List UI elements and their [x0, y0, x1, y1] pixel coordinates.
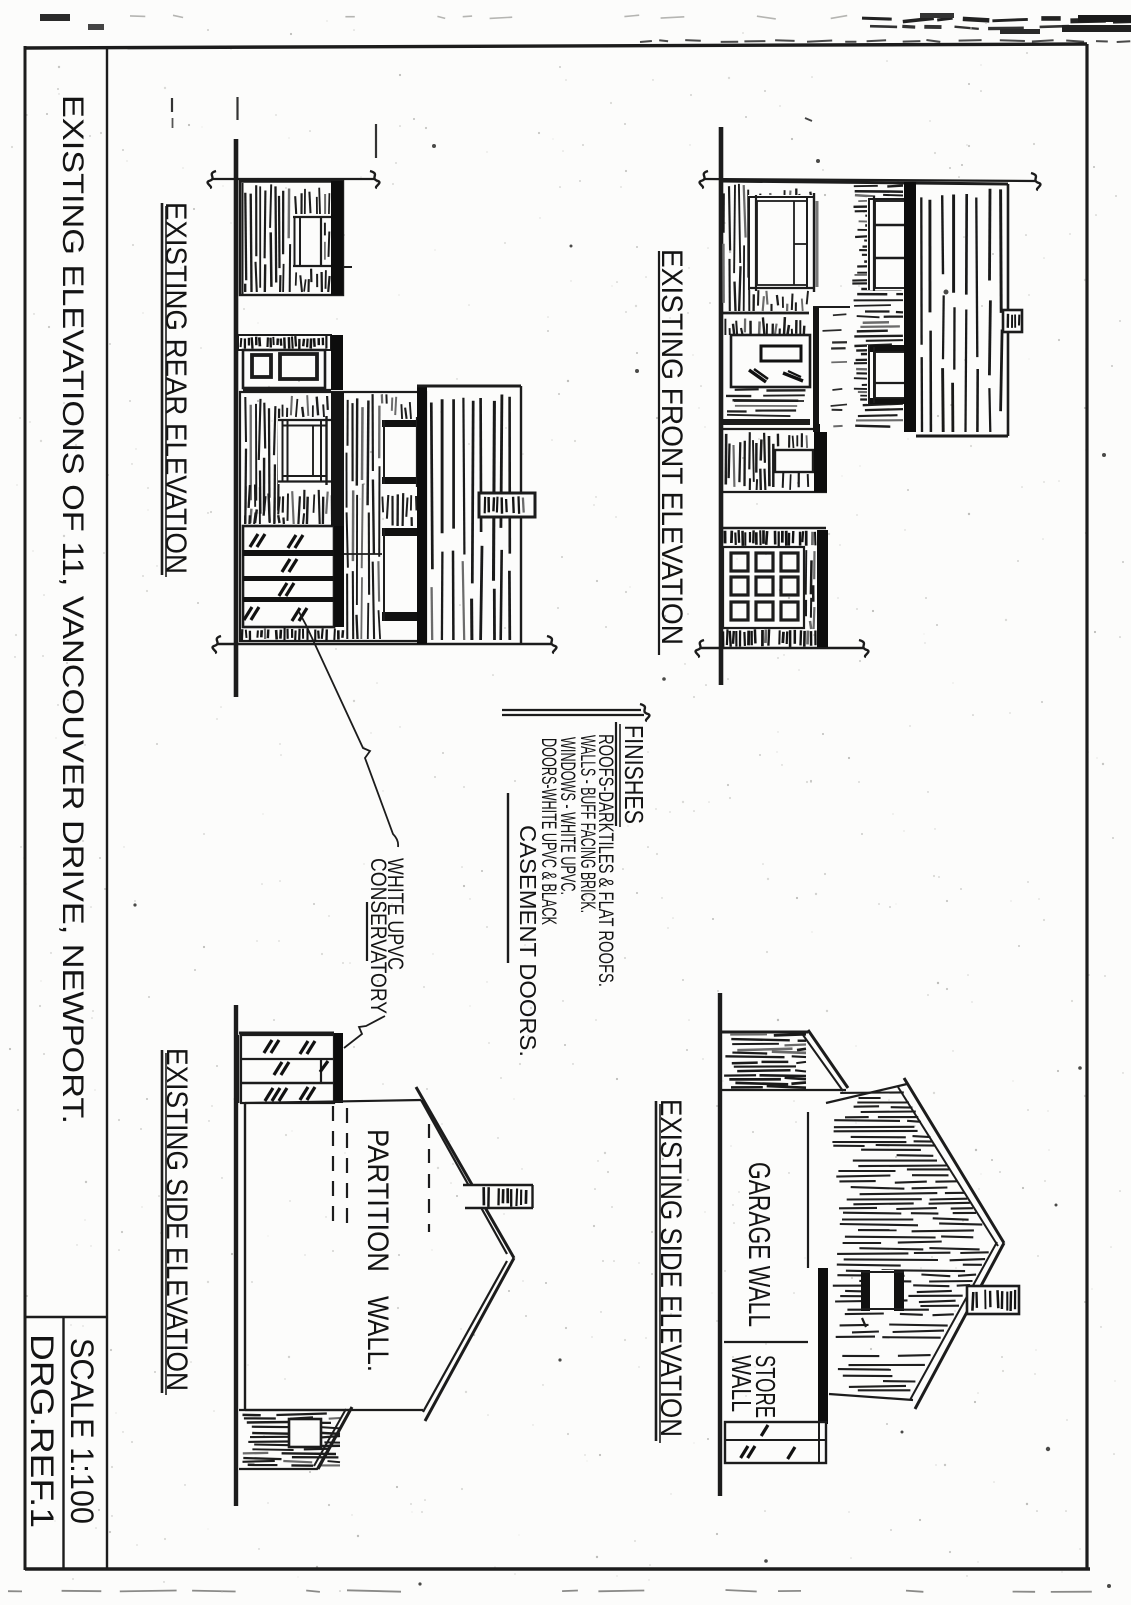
- svg-text:WALL.: WALL.: [361, 1296, 394, 1372]
- svg-text:SCALE 1:100: SCALE 1:100: [64, 1338, 100, 1524]
- svg-text:FINISHES: FINISHES: [619, 725, 649, 824]
- svg-text:CASEMENT DOORS.: CASEMENT DOORS.: [515, 825, 541, 1057]
- svg-text:GARAGE WALL: GARAGE WALL: [742, 1162, 777, 1327]
- svg-text:DRG.REF.1: DRG.REF.1: [24, 1334, 60, 1528]
- svg-text:EXISTING SIDE ELEVATION: EXISTING SIDE ELEVATION: [654, 1099, 687, 1437]
- svg-text:PARTITION: PARTITION: [361, 1129, 394, 1272]
- svg-text:WALL: WALL: [726, 1355, 757, 1412]
- svg-text:CONSERVATORY: CONSERVATORY: [366, 858, 391, 1014]
- svg-text:EXISTING REAR ELEVATION: EXISTING REAR ELEVATION: [159, 202, 192, 574]
- svg-text:EXISTING ELEVATIONS OF 11, VAN: EXISTING ELEVATIONS OF 11, VANCOUVER DRI…: [56, 95, 89, 1124]
- svg-text:EXISTING SIDE ELEVATION: EXISTING SIDE ELEVATION: [160, 1048, 193, 1391]
